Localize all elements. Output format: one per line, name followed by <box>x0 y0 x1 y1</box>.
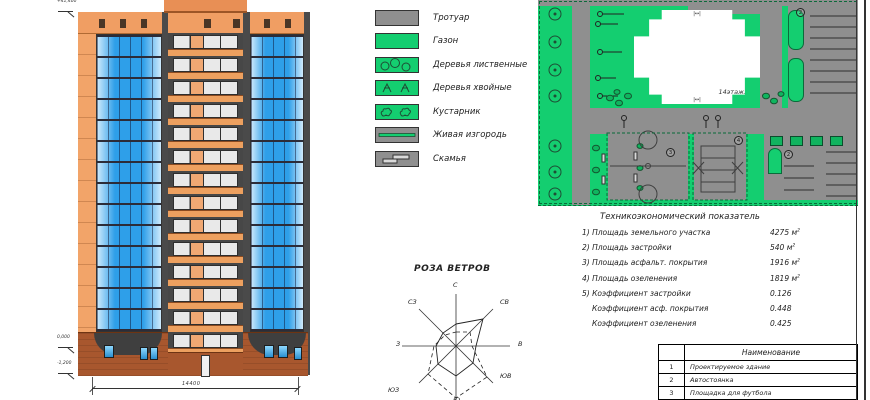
balcony-floor <box>168 217 243 240</box>
table-header-num <box>659 345 685 360</box>
plan-marker-court: 4 <box>734 136 743 145</box>
balcony-floor <box>168 240 243 263</box>
indicator-value: 0.448 <box>770 304 791 313</box>
balcony-stack <box>168 33 243 352</box>
level-mark-value: -1,200 <box>57 361 72 366</box>
dimension-line <box>92 388 298 389</box>
drawing-sheet: 14400 +41,400 0,000 -1,200 Тротуар Газон <box>0 0 870 400</box>
ground-window <box>264 345 274 358</box>
legend-item-sidewalk: Тротуар <box>375 6 550 30</box>
sidewalk-swatch-icon <box>375 10 419 26</box>
wind-rose <box>386 274 536 400</box>
indicator-label: 5) Коэффициент застройки <box>582 289 691 298</box>
indicator-value: 1819 м2 <box>770 274 800 283</box>
table-header-name: Наименование <box>685 345 857 360</box>
legend-item-lawn: Газон <box>375 30 550 54</box>
deciduous-trees-icon <box>375 57 419 73</box>
building-elevation: 14400 +41,400 0,000 -1,200 <box>56 0 316 400</box>
legend-item-hedge: Живая изгородь <box>375 124 550 148</box>
legend-label: Кустарник <box>433 107 481 117</box>
balcony-floor <box>168 286 243 309</box>
wind-dir-s: Ю <box>453 396 460 400</box>
building-footprint: |↔| |↔| 14этаж. <box>634 10 760 104</box>
indicator-value: 4275 м2 <box>770 228 800 237</box>
balcony-floor <box>168 263 243 286</box>
row-name: Площадка для футбола <box>685 387 857 399</box>
tower-door <box>201 355 210 377</box>
legend-item-bench: Скамья <box>375 147 550 171</box>
balcony-floor <box>168 171 243 194</box>
indicator-label: 3) Площадь асфальт. покрытия <box>582 258 707 267</box>
table-row: 3 Площадка для футбола <box>659 386 857 399</box>
table-row: 1 Проектируемое здание <box>659 360 857 373</box>
tower-ground-floor <box>168 352 243 375</box>
frame-border <box>856 0 857 400</box>
entrance-mark: |↔| <box>693 97 701 103</box>
level-mark-value: +41,400 <box>57 0 77 4</box>
ground-window <box>278 345 288 358</box>
tower-roof-cap <box>164 0 247 13</box>
balcony-floor <box>168 148 243 171</box>
indicator-label: 1) Площадь земельного участка <box>582 228 710 237</box>
facade-dark-strip <box>243 12 250 375</box>
hedge-icon <box>375 127 419 143</box>
indicator-label: Коэффициент асф. покрытия <box>592 304 708 313</box>
row-number: 3 <box>659 387 685 399</box>
balcony-floor <box>168 125 243 148</box>
green-square <box>790 136 803 146</box>
indicator-row: 1) Площадь земельного участка 4275 м2 <box>582 228 860 243</box>
bench-icon <box>375 151 419 167</box>
legend-item-conifer: Деревья хвойные <box>375 77 550 101</box>
conifer-trees-icon <box>375 80 419 96</box>
indicator-value: 0.126 <box>770 289 791 298</box>
indicator-value: 1916 м2 <box>770 258 800 267</box>
elevation-top-band <box>243 12 308 34</box>
schedule-table: Наименование 1 Проектируемое здание 2 Ав… <box>658 344 858 400</box>
parking-island <box>768 148 782 174</box>
legend-item-shrub: Кустарник <box>375 100 550 124</box>
legend-label: Деревья хвойные <box>433 83 512 93</box>
indicator-label: 2) Площадь застройки <box>582 243 671 252</box>
wind-rose-title: РОЗА ВЕТРОВ <box>414 264 491 274</box>
legend-label: Живая изгородь <box>433 130 507 140</box>
row-number: 2 <box>659 374 685 386</box>
wind-dir-se: ЮВ <box>500 372 511 380</box>
green-square <box>770 136 783 146</box>
ground-window <box>294 347 302 360</box>
level-mark-icon <box>58 340 73 348</box>
site-plan: |↔| |↔| 14этаж. 2 2 3 4 <box>538 0 858 206</box>
indicator-row: Коэффициент асф. покрытия 0.448 <box>582 304 860 319</box>
level-mark-value: 0,000 <box>57 335 70 340</box>
balcony-floor <box>168 102 243 125</box>
legend: Тротуар Газон Деревья лиственные <box>375 6 550 171</box>
balcony-floor <box>168 194 243 217</box>
elevation-top-band <box>78 12 168 34</box>
plan-marker-parking: 2 <box>796 8 805 17</box>
balcony-floor <box>168 309 243 332</box>
legend-label: Тротуар <box>433 13 469 23</box>
dimension-value: 14400 <box>182 381 200 387</box>
elevation-tower <box>168 0 243 375</box>
table-header-row: Наименование <box>659 345 857 360</box>
row-name: Проектируемое здание <box>685 361 857 373</box>
green-square <box>810 136 823 146</box>
green-square <box>830 136 843 146</box>
indicators-title: Техникоэкономический показатель <box>600 212 860 222</box>
technical-indicators: Техникоэкономический показатель 1) Площа… <box>582 212 860 334</box>
wind-dir-n: С <box>453 281 458 289</box>
balcony-floor <box>168 33 243 56</box>
indicator-value: 540 м2 <box>770 243 795 252</box>
facade-dark-strip <box>304 12 310 375</box>
indicator-row: 3) Площадь асфальт. покрытия 1916 м2 <box>582 258 860 273</box>
level-mark-icon <box>58 4 73 12</box>
wind-dir-ne: СВ <box>500 298 509 306</box>
wind-dir-w: З <box>396 340 400 348</box>
row-name: Автостоянка <box>685 374 857 386</box>
indicator-row: 2) Площадь застройки 540 м2 <box>582 243 860 258</box>
entrance-mark: |↔| <box>693 11 701 17</box>
row-number: 1 <box>659 361 685 373</box>
ground-window <box>104 345 114 358</box>
wind-dir-sw: ЮЗ <box>388 386 399 394</box>
indicator-label: Коэффициент озеленения <box>592 319 696 328</box>
wind-dir-e: В <box>518 340 522 348</box>
frame-border <box>864 0 866 400</box>
balcony-floor <box>168 56 243 79</box>
lawn-swatch-icon <box>375 33 419 49</box>
shrub-icon <box>375 104 419 120</box>
legend-label: Газон <box>433 36 458 46</box>
indicator-row: 5) Коэффициент застройки 0.126 <box>582 289 860 304</box>
plan-marker-parking: 2 <box>784 150 793 159</box>
glazing-right <box>250 34 304 332</box>
indicator-row: 4) Площадь озеленения 1819 м2 <box>582 274 860 289</box>
indicator-row: Коэффициент озеленения 0.425 <box>582 319 860 334</box>
balcony-floor <box>168 79 243 102</box>
indicator-label: 4) Площадь озеленения <box>582 274 677 283</box>
indicator-value: 0.425 <box>770 319 791 328</box>
level-mark-icon <box>58 366 73 374</box>
ground-window <box>140 347 148 360</box>
table-row: 2 Автостоянка <box>659 373 857 386</box>
plan-marker-field: 3 <box>666 148 675 157</box>
ground-window <box>150 347 158 360</box>
legend-label: Скамья <box>433 154 466 164</box>
legend-item-deciduous: Деревья лиственные <box>375 53 550 77</box>
legend-label: Деревья лиственные <box>433 60 527 70</box>
wind-dir-nw: СЗ <box>408 298 417 306</box>
wind-rose-polygon-solid <box>436 319 483 376</box>
parking-island <box>788 58 804 102</box>
glazing-left <box>96 34 162 332</box>
balcony-floor <box>168 332 243 352</box>
tower-top-band <box>168 13 243 33</box>
